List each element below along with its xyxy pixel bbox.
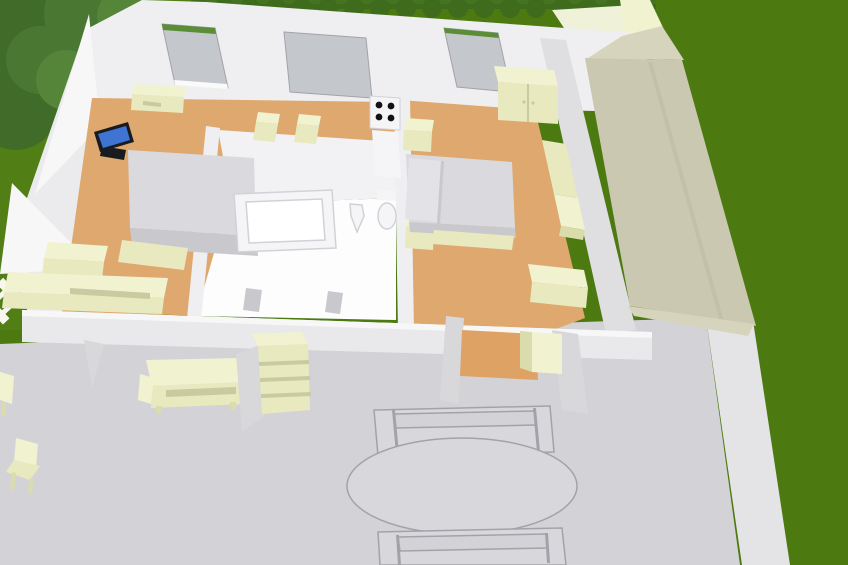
stove-burner bbox=[388, 103, 395, 110]
sideboard-top[interactable] bbox=[146, 358, 246, 386]
stool-front bbox=[294, 124, 319, 144]
wardrobe-handle bbox=[531, 101, 534, 104]
alcove-cabinet[interactable] bbox=[532, 332, 562, 374]
sideboard-leg bbox=[230, 402, 236, 410]
stove-burner bbox=[388, 115, 395, 122]
kitchen-counter[interactable] bbox=[372, 130, 401, 178]
bathtub-basin bbox=[246, 199, 325, 243]
garden-bench-top-backrest bbox=[394, 411, 536, 428]
bed-pillows bbox=[405, 158, 441, 222]
stove-burner bbox=[376, 114, 383, 121]
stool-front bbox=[253, 122, 278, 142]
floor-fixture[interactable] bbox=[325, 291, 343, 314]
nightstand[interactable] bbox=[404, 118, 434, 132]
alcove-cabinet-side bbox=[520, 331, 532, 372]
rear-door[interactable] bbox=[284, 32, 372, 98]
stool[interactable] bbox=[256, 112, 280, 124]
nightstand-front bbox=[403, 130, 432, 152]
wardrobe-handle bbox=[522, 100, 525, 103]
stove-burner bbox=[376, 102, 383, 109]
toilet-bowl[interactable] bbox=[378, 203, 396, 229]
floor-fixture[interactable] bbox=[243, 288, 262, 312]
shelf-unit-top bbox=[252, 332, 308, 346]
sideboard-leg bbox=[156, 406, 162, 414]
stool[interactable] bbox=[297, 114, 321, 126]
toilet-tank[interactable] bbox=[377, 190, 396, 201]
oval-table[interactable] bbox=[347, 438, 577, 534]
stove[interactable] bbox=[370, 96, 400, 130]
garden-chair[interactable] bbox=[0, 372, 14, 404]
garden-bench-bottom-backrest bbox=[398, 534, 548, 551]
floor-plan-3d-view[interactable] bbox=[0, 0, 848, 565]
wardrobe-door-seam bbox=[527, 84, 529, 122]
